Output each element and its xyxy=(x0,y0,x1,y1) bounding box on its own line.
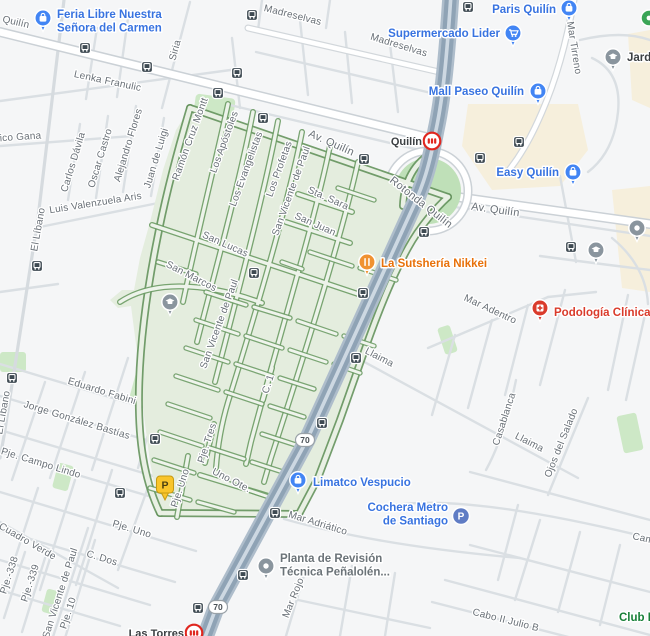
supermercado-lider-label[interactable]: Supermercado Lider xyxy=(388,28,500,40)
bus-stop-icon[interactable] xyxy=(7,373,18,384)
bus-stop-icon[interactable] xyxy=(238,570,249,581)
bus-stop-icon[interactable] xyxy=(249,268,260,279)
bus-stop-icon[interactable] xyxy=(463,2,474,13)
bus-stop-icon[interactable] xyxy=(193,603,204,614)
parking-circle-icon[interactable]: P xyxy=(453,508,470,525)
bus-stop-icon[interactable] xyxy=(142,62,153,73)
bus-stop-icon[interactable] xyxy=(213,88,224,99)
map-canvas[interactable]: QuilínMadreselvasMadreselvasSiriaLenka F… xyxy=(0,0,650,636)
bus-stop-icon[interactable] xyxy=(419,227,430,238)
bus-stop-icon[interactable] xyxy=(32,261,43,272)
svg-text:P: P xyxy=(458,512,465,523)
feria-libre-nuestra-senora-del-carmen-label[interactable]: Feria Libre NuestraSeñora del Carmen xyxy=(57,9,162,35)
bus-stop-icon[interactable] xyxy=(232,68,243,79)
limatco-vespucio-label[interactable]: Limatco Vespucio xyxy=(313,477,411,489)
jardin-label[interactable]: Jard xyxy=(627,52,650,64)
park-dot-icon[interactable] xyxy=(641,10,650,26)
bus-stop-icon[interactable] xyxy=(358,288,369,299)
podologia-clinica-label[interactable]: Podología Clínica IC xyxy=(554,307,650,319)
svg-text:P: P xyxy=(161,480,168,492)
metro-station-label[interactable]: Quilín xyxy=(391,136,422,148)
metro-station-icon[interactable] xyxy=(186,625,203,636)
bus-stop-icon[interactable] xyxy=(351,353,362,364)
bus-stop-icon[interactable] xyxy=(359,154,370,165)
bus-stop-icon[interactable] xyxy=(475,153,486,164)
metro-station-label[interactable]: Las Torres xyxy=(129,628,184,636)
bus-stop-icon[interactable] xyxy=(150,434,161,445)
metro-station-icon[interactable] xyxy=(424,133,441,150)
route-70-shield: 70 xyxy=(296,434,315,447)
svg-text:70: 70 xyxy=(300,435,310,445)
club-label[interactable]: Club E xyxy=(619,612,650,624)
mall-paseo-quilin-label[interactable]: Mall Paseo Quilín xyxy=(429,86,524,98)
route-70-shield: 70 xyxy=(209,601,228,614)
bus-stop-icon[interactable] xyxy=(566,242,577,253)
easy-quilin-label[interactable]: Easy Quilín xyxy=(496,167,559,179)
bus-stop-icon[interactable] xyxy=(247,10,258,21)
svg-text:70: 70 xyxy=(213,602,223,612)
planta-revision-tecnica-label[interactable]: Planta de RevisiónTécnica Peñalolén... xyxy=(280,553,390,579)
bus-stop-icon[interactable] xyxy=(80,43,91,54)
bus-stop-icon[interactable] xyxy=(258,113,269,124)
bus-stop-icon[interactable] xyxy=(514,137,525,148)
la-sutsheria-nikkei-label[interactable]: La Sutshería Nikkei xyxy=(381,258,487,270)
bus-stop-icon[interactable] xyxy=(115,488,126,499)
bus-stop-icon[interactable] xyxy=(317,418,328,429)
bus-stop-icon[interactable] xyxy=(270,508,281,519)
paris-quilin-label[interactable]: Paris Quilín xyxy=(492,4,556,16)
